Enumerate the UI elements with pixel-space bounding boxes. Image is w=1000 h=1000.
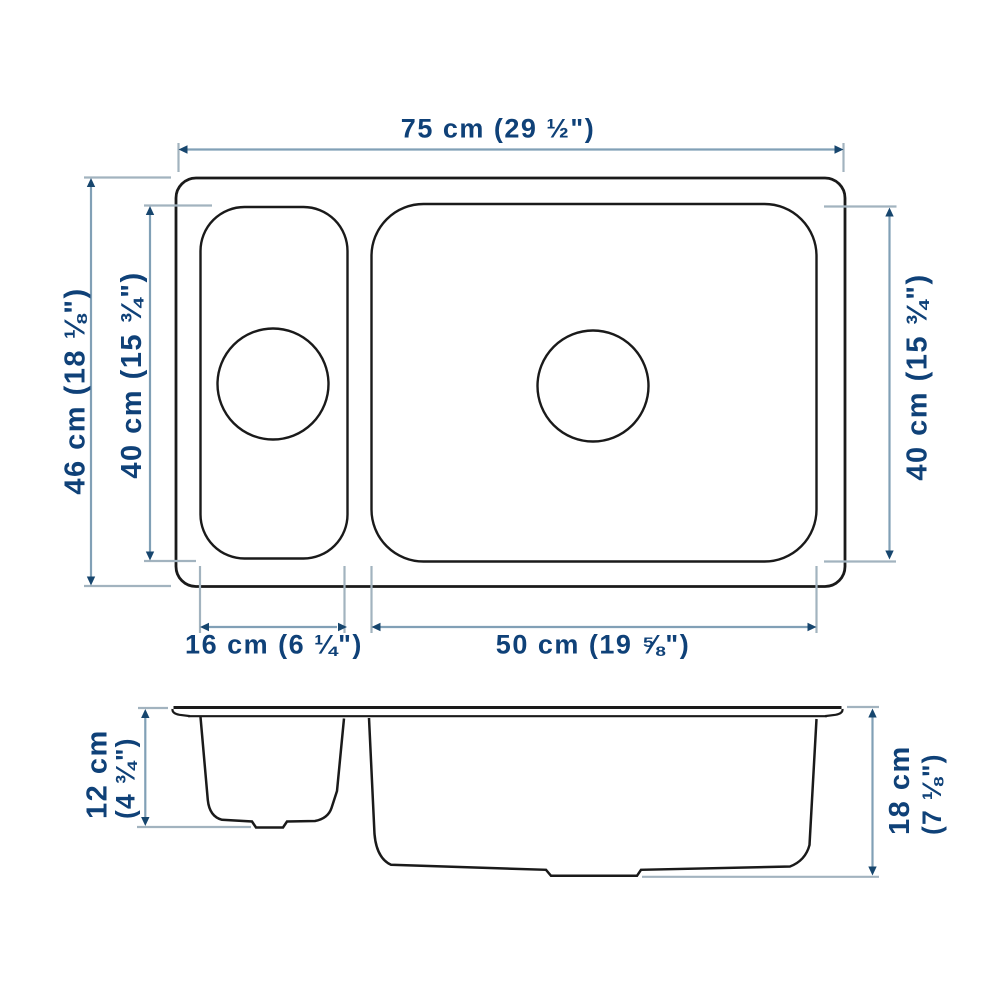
svg-text:(4 ¾"): (4 ¾") bbox=[111, 737, 141, 819]
svg-text:18 cm: 18 cm bbox=[884, 745, 916, 835]
svg-text:50 cm (19 ⅝"): 50 cm (19 ⅝") bbox=[496, 630, 690, 660]
svg-text:40 cm (15 ¾"): 40 cm (15 ¾") bbox=[116, 271, 148, 478]
svg-text:(7 ⅛"): (7 ⅛") bbox=[917, 753, 947, 835]
svg-text:16 cm (6 ¼"): 16 cm (6 ¼") bbox=[185, 630, 363, 660]
svg-text:75 cm (29 ½"): 75 cm (29 ½") bbox=[401, 114, 595, 144]
svg-text:46 cm (18 ⅛"): 46 cm (18 ⅛") bbox=[60, 287, 92, 494]
svg-text:40 cm (15 ¾"): 40 cm (15 ¾") bbox=[902, 273, 934, 480]
svg-text:12 cm: 12 cm bbox=[82, 729, 114, 819]
